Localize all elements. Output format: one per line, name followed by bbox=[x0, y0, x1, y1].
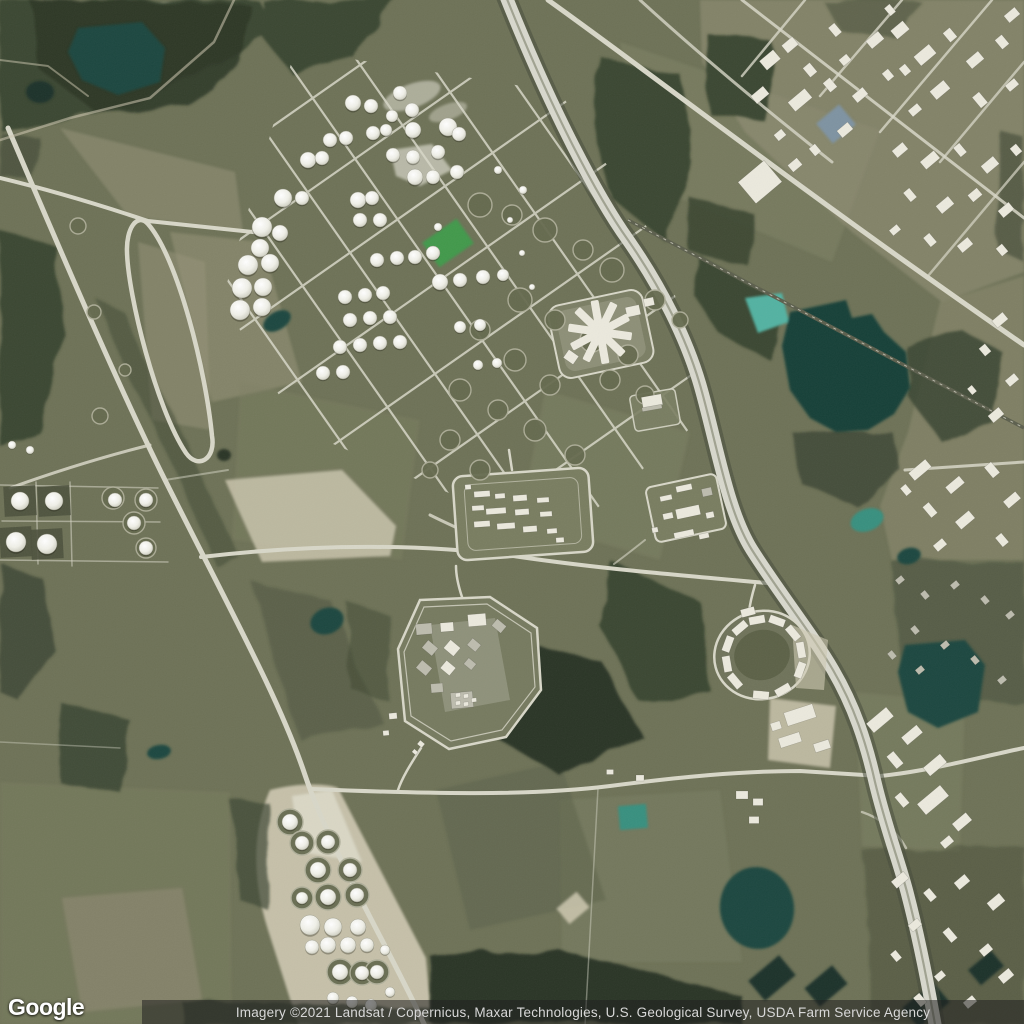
attribution-bar: Imagery ©2021 Landsat / Copernicus, Maxa… bbox=[142, 1000, 1024, 1024]
google-logo[interactable]: Google bbox=[8, 994, 84, 1021]
attribution-text: Imagery ©2021 Landsat / Copernicus, Maxa… bbox=[236, 1005, 930, 1020]
map-viewport[interactable]: Google Imagery ©2021 Landsat / Copernicu… bbox=[0, 0, 1024, 1024]
map-canvas[interactable] bbox=[0, 0, 1024, 1024]
grain-overlay bbox=[0, 0, 1024, 1024]
